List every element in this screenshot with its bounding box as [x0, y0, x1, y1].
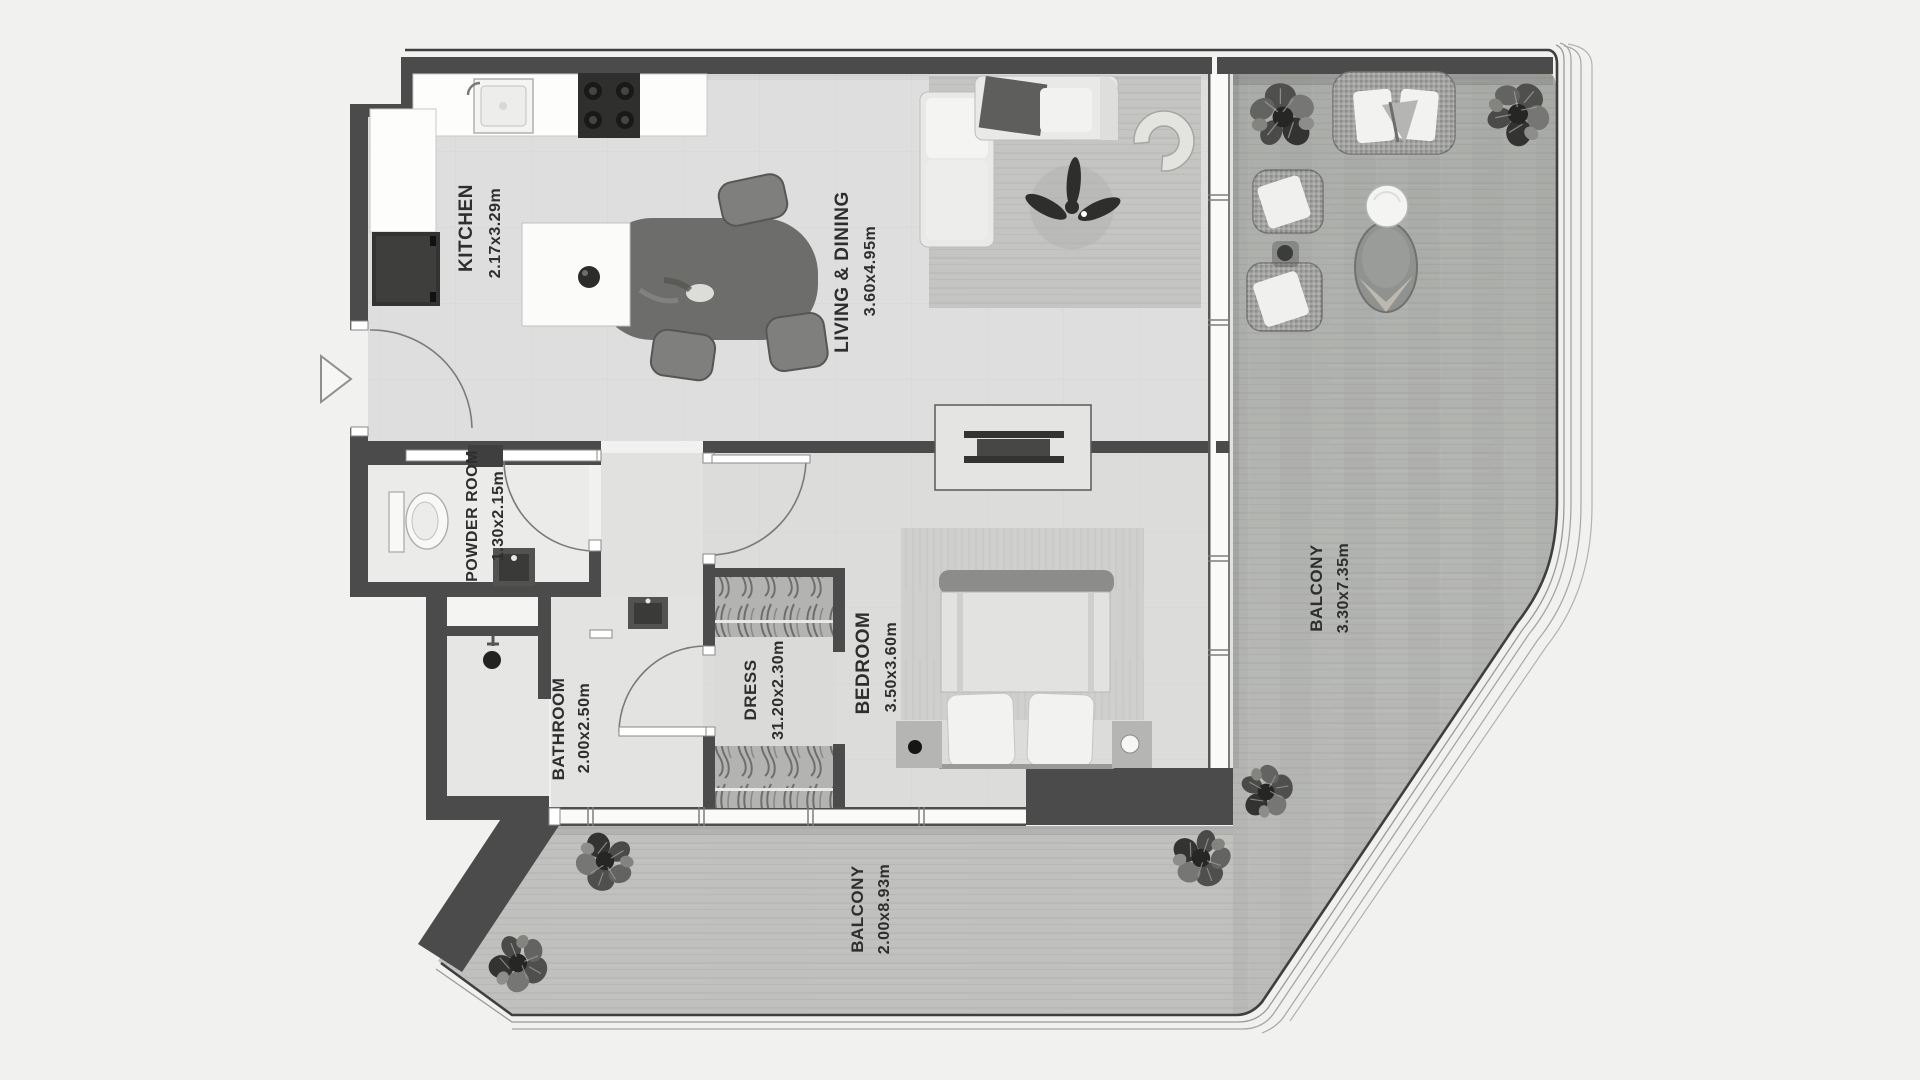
- svg-text:1.30x2.15m: 1.30x2.15m: [490, 471, 507, 561]
- svg-text:3.50x3.60m: 3.50x3.60m: [883, 622, 900, 712]
- svg-text:2.00x2.50m: 2.00x2.50m: [576, 683, 593, 773]
- svg-text:BALCONY: BALCONY: [1307, 544, 1326, 632]
- svg-text:BATHROOM: BATHROOM: [549, 678, 568, 781]
- svg-text:KITCHEN: KITCHEN: [456, 184, 477, 272]
- svg-text:LIVING & DINING: LIVING & DINING: [832, 191, 853, 353]
- svg-text:3.60x4.95m: 3.60x4.95m: [862, 226, 879, 316]
- svg-text:2.17x3.29m: 2.17x3.29m: [487, 188, 504, 278]
- svg-text:BEDROOM: BEDROOM: [853, 612, 874, 715]
- svg-text:2.00x8.93m: 2.00x8.93m: [876, 864, 893, 954]
- svg-text:31.20x2.30m: 31.20x2.30m: [770, 640, 787, 740]
- svg-text:BALCONY: BALCONY: [848, 865, 867, 953]
- svg-text:POWDER ROOM: POWDER ROOM: [464, 450, 481, 582]
- svg-text:3.30x7.35m: 3.30x7.35m: [1335, 543, 1352, 633]
- svg-text:DRESS: DRESS: [741, 659, 760, 720]
